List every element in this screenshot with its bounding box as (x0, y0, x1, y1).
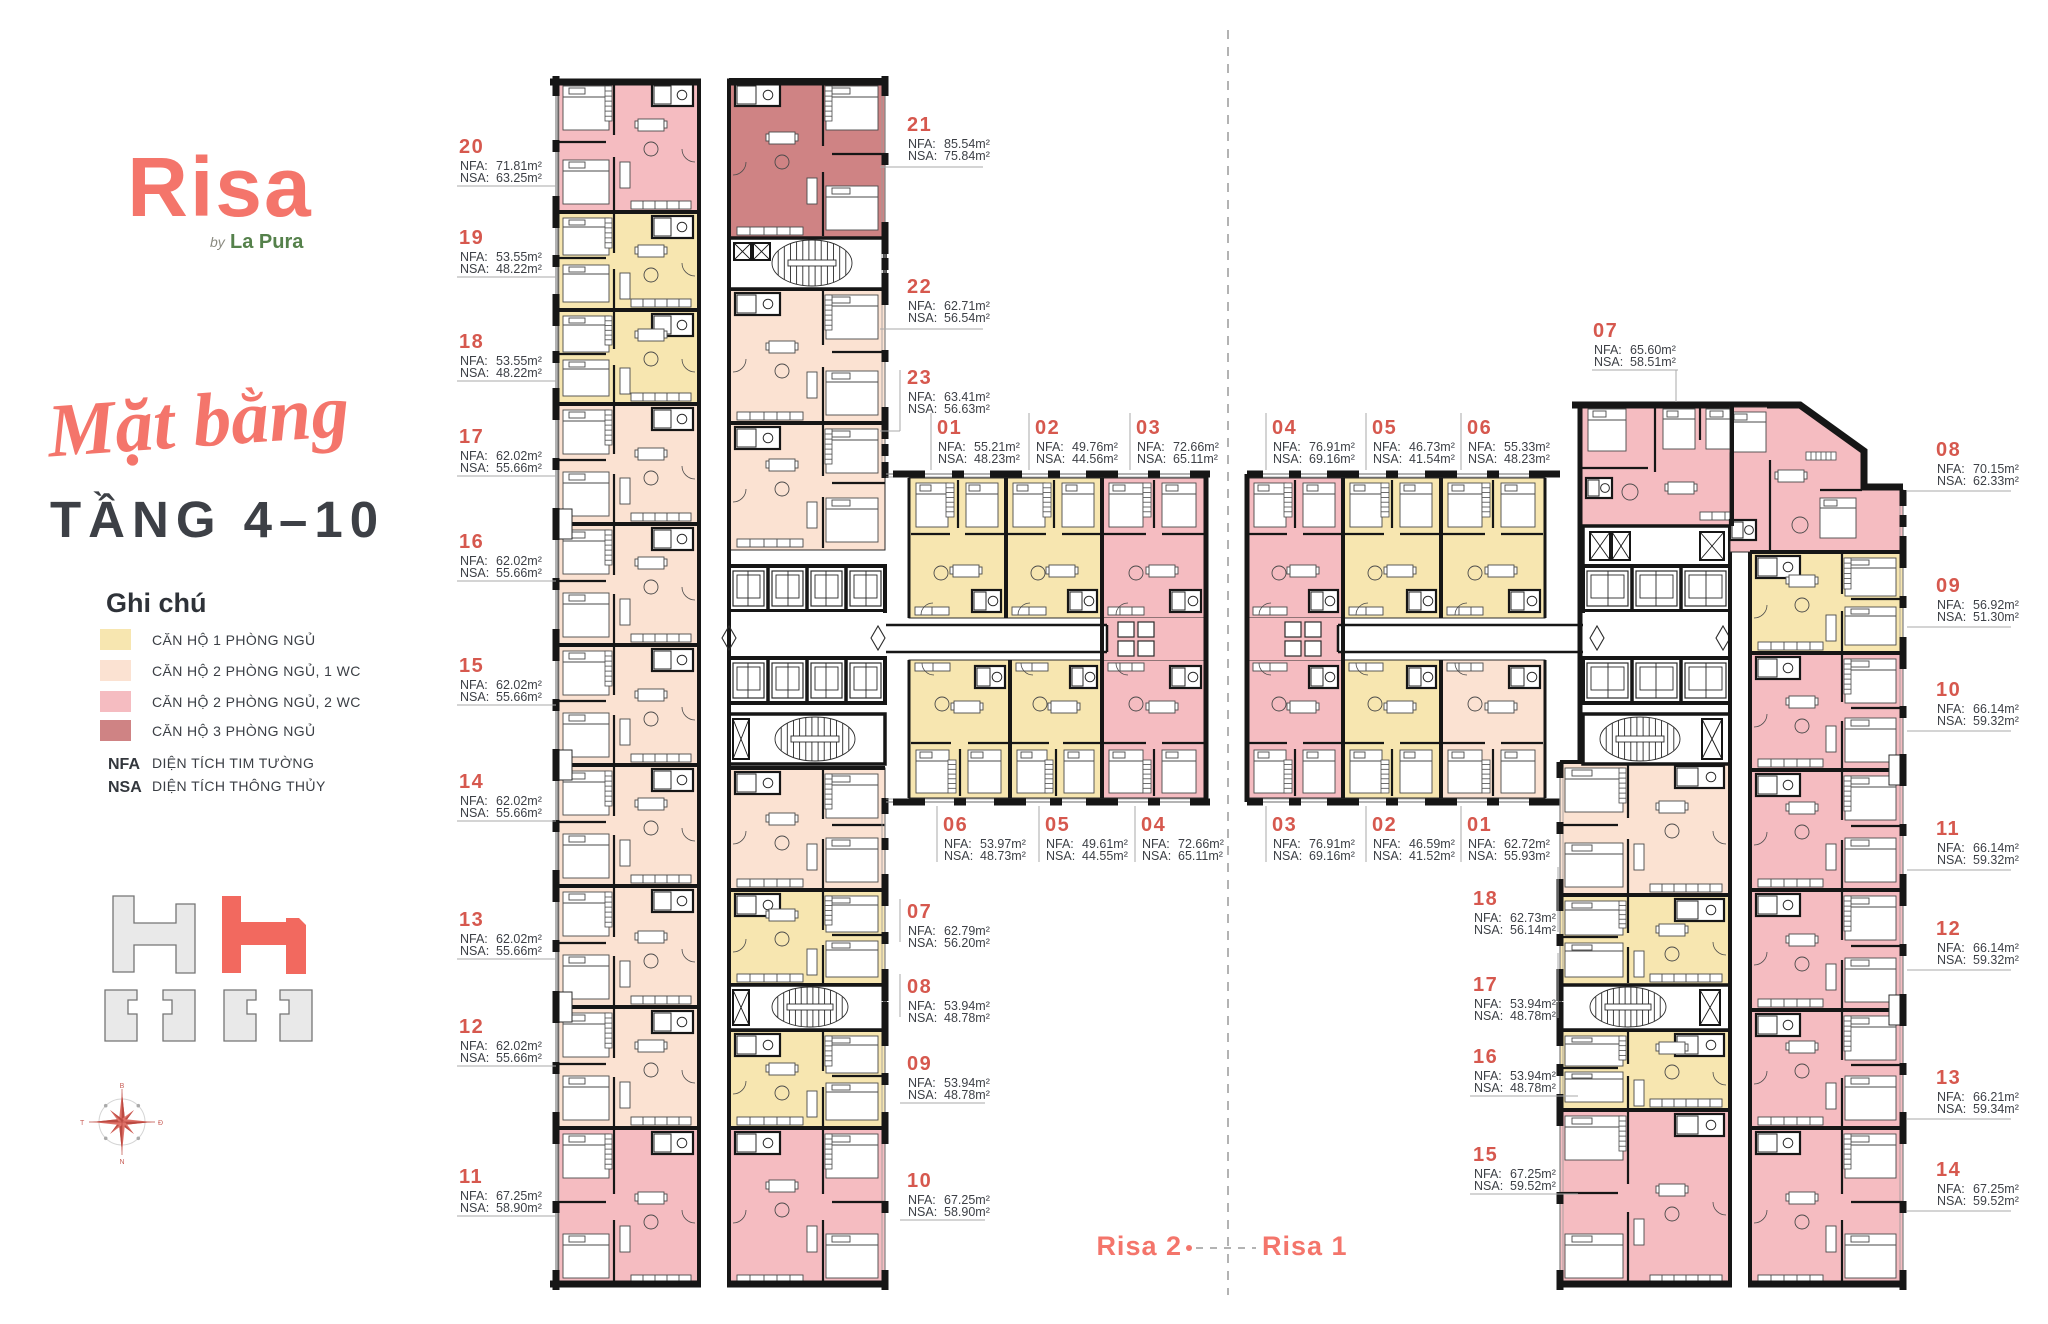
svg-text:55.66m²: 55.66m² (496, 690, 542, 704)
svg-text:04: 04 (1272, 417, 1297, 439)
svg-text:05: 05 (1045, 814, 1070, 836)
svg-text:04: 04 (1141, 814, 1166, 836)
svg-text:55.66m²: 55.66m² (496, 944, 542, 958)
svg-text:55.66m²: 55.66m² (496, 566, 542, 580)
svg-text:62.33m²: 62.33m² (1973, 474, 2019, 488)
svg-text:NSA:: NSA: (908, 402, 937, 416)
svg-text:NSA:: NSA: (1937, 953, 1966, 967)
svg-text:63.25m²: 63.25m² (496, 171, 542, 185)
svg-text:08: 08 (907, 976, 932, 998)
svg-text:18: 18 (1473, 888, 1498, 910)
svg-text:NSA:: NSA: (1046, 849, 1075, 863)
svg-text:Ghi chú: Ghi chú (106, 588, 207, 618)
svg-text:NSA:: NSA: (1937, 474, 1966, 488)
svg-text:NSA:: NSA: (460, 690, 489, 704)
svg-text:48.78m²: 48.78m² (944, 1088, 990, 1102)
svg-text:48.22m²: 48.22m² (496, 262, 542, 276)
svg-text:NSA:: NSA: (1594, 355, 1623, 369)
svg-text:TẦNG 4–10: TẦNG 4–10 (50, 490, 385, 548)
svg-text:N: N (119, 1159, 124, 1166)
svg-text:59.32m²: 59.32m² (1973, 953, 2019, 967)
svg-text:44.55m²: 44.55m² (1082, 849, 1128, 863)
svg-text:09: 09 (907, 1053, 932, 1075)
svg-text:16: 16 (1473, 1046, 1498, 1068)
svg-text:15: 15 (1473, 1144, 1498, 1166)
svg-text:NSA:: NSA: (1142, 849, 1171, 863)
svg-text:NSA:: NSA: (1273, 452, 1302, 466)
svg-text:NSA:: NSA: (460, 171, 489, 185)
svg-text:22: 22 (907, 276, 932, 298)
svg-text:NSA:: NSA: (1373, 849, 1402, 863)
svg-text:55.93m²: 55.93m² (1504, 849, 1550, 863)
svg-text:59.52m²: 59.52m² (1973, 1194, 2019, 1208)
svg-text:58.90m²: 58.90m² (944, 1205, 990, 1219)
svg-text:NSA:: NSA: (460, 806, 489, 820)
svg-text:58.51m²: 58.51m² (1630, 355, 1676, 369)
svg-text:69.16m²: 69.16m² (1309, 452, 1355, 466)
svg-text:CĂN HỘ 1 PHÒNG NGỦ: CĂN HỘ 1 PHÒNG NGỦ (152, 631, 316, 648)
svg-text:Đ: Đ (158, 1120, 163, 1127)
svg-text:17: 17 (459, 426, 484, 448)
svg-text:48.22m²: 48.22m² (496, 366, 542, 380)
svg-text:51.30m²: 51.30m² (1973, 610, 2019, 624)
svg-text:56.20m²: 56.20m² (944, 936, 990, 950)
svg-text:01: 01 (1467, 814, 1492, 836)
svg-text:14: 14 (1936, 1159, 1961, 1181)
svg-text:CĂN HỘ 2 PHÒNG NGỦ, 2 WC: CĂN HỘ 2 PHÒNG NGỦ, 2 WC (152, 693, 361, 710)
svg-text:41.52m²: 41.52m² (1409, 849, 1455, 863)
svg-text:07: 07 (1593, 320, 1618, 342)
svg-text:18: 18 (459, 331, 484, 353)
svg-text:NSA:: NSA: (1937, 1102, 1966, 1116)
svg-text:56.54m²: 56.54m² (944, 311, 990, 325)
svg-text:44.56m²: 44.56m² (1072, 452, 1118, 466)
svg-text:CĂN HỘ 2 PHÒNG NGỦ, 1 WC: CĂN HỘ 2 PHÒNG NGỦ, 1 WC (152, 662, 361, 679)
svg-text:03: 03 (1272, 814, 1297, 836)
svg-text:65.11m²: 65.11m² (1178, 849, 1223, 863)
svg-text:02: 02 (1372, 814, 1397, 836)
svg-text:59.32m²: 59.32m² (1973, 853, 2019, 867)
svg-text:10: 10 (1936, 679, 1961, 701)
svg-text:48.23m²: 48.23m² (1504, 452, 1550, 466)
svg-text:48.73m²: 48.73m² (980, 849, 1026, 863)
svg-text:06: 06 (1467, 417, 1492, 439)
svg-text:06: 06 (943, 814, 968, 836)
svg-text:03: 03 (1136, 417, 1161, 439)
svg-text:56.63m²: 56.63m² (944, 402, 990, 416)
svg-text:48.78m²: 48.78m² (1510, 1009, 1556, 1023)
svg-text:48.78m²: 48.78m² (1510, 1081, 1556, 1095)
svg-text:NSA:: NSA: (1937, 1194, 1966, 1208)
svg-text:12: 12 (1936, 918, 1961, 940)
svg-text:NSA:: NSA: (908, 1011, 937, 1025)
svg-text:01: 01 (937, 417, 962, 439)
svg-text:15: 15 (459, 655, 484, 677)
svg-text:58.90m²: 58.90m² (496, 1201, 542, 1215)
svg-text:NSA:: NSA: (1468, 849, 1497, 863)
svg-text:21: 21 (907, 114, 932, 136)
svg-text:Risa 1: Risa 1 (1262, 1231, 1348, 1261)
svg-text:65.11m²: 65.11m² (1173, 452, 1218, 466)
svg-text:NSA:: NSA: (1474, 1009, 1503, 1023)
svg-text:19: 19 (459, 227, 484, 249)
svg-text:10: 10 (907, 1170, 932, 1192)
svg-text:NSA:: NSA: (460, 566, 489, 580)
svg-text:NSA:: NSA: (1273, 849, 1302, 863)
svg-text:09: 09 (1936, 575, 1961, 597)
svg-text:NSA:: NSA: (460, 366, 489, 380)
svg-text:Risa: Risa (127, 140, 312, 234)
svg-text:56.14m²: 56.14m² (1510, 923, 1556, 937)
svg-text:NSA:: NSA: (460, 944, 489, 958)
svg-text:NSA:: NSA: (1474, 1179, 1503, 1193)
svg-text:05: 05 (1372, 417, 1397, 439)
svg-text:NSA:: NSA: (460, 461, 489, 475)
svg-text:NSA:: NSA: (1474, 1081, 1503, 1095)
svg-text:55.66m²: 55.66m² (496, 1051, 542, 1065)
svg-text:T: T (80, 1120, 85, 1127)
svg-text:41.54m²: 41.54m² (1409, 452, 1455, 466)
svg-text:02: 02 (1035, 417, 1060, 439)
svg-text:NSA:: NSA: (908, 1088, 937, 1102)
svg-text:NSA:: NSA: (908, 1205, 937, 1219)
svg-text:13: 13 (1936, 1067, 1961, 1089)
svg-text:11: 11 (459, 1166, 483, 1188)
svg-text:B: B (120, 1083, 125, 1090)
svg-text:17: 17 (1473, 974, 1498, 996)
svg-text:55.66m²: 55.66m² (496, 806, 542, 820)
svg-text:NSA:: NSA: (1937, 714, 1966, 728)
svg-text:69.16m²: 69.16m² (1309, 849, 1355, 863)
svg-text:DIỆN TÍCH TIM TƯỜNG: DIỆN TÍCH TIM TƯỜNG (152, 755, 314, 771)
svg-text:NSA:: NSA: (938, 452, 967, 466)
svg-text:14: 14 (459, 771, 484, 793)
svg-text:NSA:: NSA: (1036, 452, 1065, 466)
svg-text:NSA:: NSA: (908, 311, 937, 325)
svg-text:07: 07 (907, 901, 932, 923)
svg-text:La Pura: La Pura (230, 231, 304, 253)
svg-text:08: 08 (1936, 439, 1961, 461)
svg-text:23: 23 (907, 367, 932, 389)
svg-text:CĂN HỘ 3 PHÒNG NGỦ: CĂN HỘ 3 PHÒNG NGỦ (152, 722, 316, 739)
svg-text:NSA:: NSA: (1373, 452, 1402, 466)
svg-text:13: 13 (459, 909, 484, 931)
svg-text:NSA:: NSA: (460, 262, 489, 276)
svg-text:16: 16 (459, 531, 484, 553)
svg-text:NSA:: NSA: (908, 936, 937, 950)
svg-text:NSA:: NSA: (908, 149, 937, 163)
svg-text:11: 11 (1936, 818, 1960, 840)
svg-text:75.84m²: 75.84m² (944, 149, 990, 163)
svg-text:DIỆN TÍCH THÔNG THỦY: DIỆN TÍCH THÔNG THỦY (152, 777, 326, 794)
svg-text:55.66m²: 55.66m² (496, 461, 542, 475)
svg-text:NSA:: NSA: (1474, 923, 1503, 937)
svg-text:NSA:: NSA: (1937, 853, 1966, 867)
svg-text:48.78m²: 48.78m² (944, 1011, 990, 1025)
svg-text:NFA: NFA (108, 756, 140, 773)
svg-text:NSA: NSA (108, 779, 142, 796)
svg-text:NSA:: NSA: (1137, 452, 1166, 466)
svg-text:NSA:: NSA: (460, 1051, 489, 1065)
svg-text:12: 12 (459, 1016, 484, 1038)
svg-text:NSA:: NSA: (1468, 452, 1497, 466)
svg-text:48.23m²: 48.23m² (974, 452, 1020, 466)
svg-text:59.52m²: 59.52m² (1510, 1179, 1556, 1193)
svg-text:by: by (210, 234, 226, 250)
svg-text:Risa 2: Risa 2 (1096, 1231, 1182, 1261)
svg-text:20: 20 (459, 136, 484, 158)
svg-text:59.32m²: 59.32m² (1973, 714, 2019, 728)
svg-text:NSA:: NSA: (944, 849, 973, 863)
svg-text:NSA:: NSA: (1937, 610, 1966, 624)
svg-text:59.34m²: 59.34m² (1973, 1102, 2019, 1116)
svg-text:NSA:: NSA: (460, 1201, 489, 1215)
